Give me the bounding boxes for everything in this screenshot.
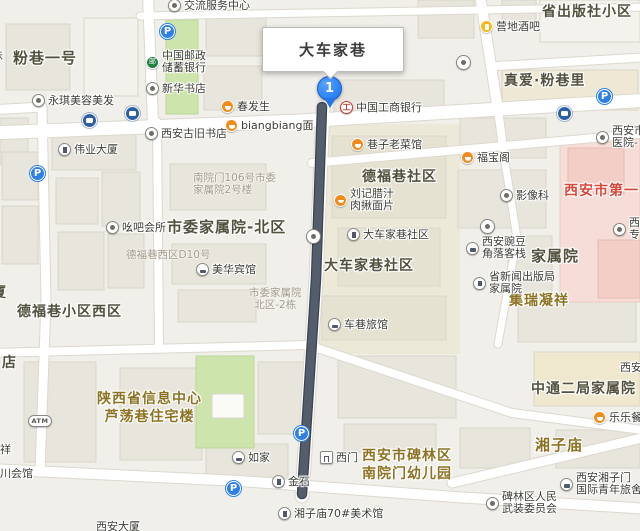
hotel-icon: [560, 478, 573, 491]
area-fenxiang-yihao: 粉巷一号: [13, 49, 77, 68]
hotel-icon: [232, 451, 245, 464]
poi-weiye-dasha: 伟业大厦: [58, 143, 118, 156]
parking-bottom: [226, 481, 241, 500]
poi-yongqi-meirong-meifa: 永琪美容美发: [32, 94, 114, 107]
poi-fubaoge: 福宝阁: [461, 151, 510, 164]
area-xiangzimiao: 湘子庙: [535, 436, 583, 455]
hotel-icon: [196, 263, 209, 276]
dot-icon: [146, 82, 159, 95]
poi-sheng-xinwen-chubanju-jiashuyuan: 省新闻出版局家属院: [473, 271, 555, 295]
area-sha-partial: 厦: [0, 285, 7, 303]
addr-defuxiang-xiqu-d10: 德福巷西区D10号: [126, 249, 210, 261]
bus-icon: [82, 113, 97, 128]
route-marker-number: 1: [325, 81, 334, 96]
poi-xiang-partial: 祥: [0, 444, 11, 456]
poi-beilinqu-renmin-wuzhuang-weiyuanhui: 碑林区人民武装委员会: [486, 491, 557, 515]
dot-icon: [456, 55, 471, 70]
area-dachejiaxiang-shequ: 大车家巷社区: [324, 258, 414, 276]
bldg-icon: [347, 228, 360, 241]
bus-icon: [557, 106, 572, 121]
parking-right: [597, 89, 612, 108]
parking-on-route: [294, 426, 309, 445]
dot-icon: [32, 94, 45, 107]
dot-icon: [500, 189, 513, 202]
parking-left: [30, 166, 45, 185]
poi-yingdi-jiuba: 营地酒吧: [480, 20, 540, 33]
hotel-icon: [328, 318, 341, 331]
poi-xiangzimiao-70-meishuguan: 湘子庙70#美术馆: [278, 507, 383, 520]
poi-dot-route: [306, 229, 321, 248]
poi-chuan-huiguan-partial: 川会馆: [0, 468, 33, 480]
food-icon: [334, 194, 347, 207]
poi-ximen: 西门: [320, 451, 358, 464]
poi-dachejiaxiang-shequ-poi: 大车家巷社区: [347, 228, 429, 241]
area-dian-partial: 店: [2, 355, 17, 373]
poi-yingxiangke: 影像科: [500, 189, 549, 202]
parking-icon: [597, 89, 612, 104]
area-defuxiang-xiaoqu-xiqu: 德福巷小区西区: [17, 304, 122, 322]
area-beilinqu-youeryuan: 西安市碑林区南院门幼儿园: [362, 448, 452, 483]
poi-dot-top: [456, 55, 471, 74]
beer-icon: [480, 20, 493, 33]
poi-xian-dasha-partial: 西安大厦: [96, 521, 140, 531]
addr-nanyuanmen-106-hao: 南院门106号市委家属院2号楼: [193, 172, 276, 196]
poi-xian-wandou-jiaoluo-kezhan: 西安豌豆角落客栈: [466, 236, 526, 260]
poi-xian-xiangzimen-guoji-qingnian-lvshe: 西安湘子门国际青年旅舍: [560, 472, 640, 496]
poi-yaoba-huisuo: 吆吧会所: [106, 221, 166, 234]
poi-dot-center: [480, 219, 495, 238]
dot-icon: [106, 221, 119, 234]
dot-icon: [145, 127, 158, 140]
bus-stop-right: [557, 106, 572, 125]
dot-icon: [168, 0, 181, 12]
area-xianshi-diyi-yiyuan: 西安市第一: [564, 183, 639, 201]
dot-icon: [613, 223, 626, 236]
poi-chunfasheng: 春发生: [221, 100, 270, 113]
addr-beiqu-2-dong: 市委家属院北区-2栋: [249, 287, 302, 311]
poi-chexiang-lvguan: 车巷旅馆: [328, 318, 388, 331]
dot-icon: [306, 229, 321, 244]
bus-stop-left-2: [125, 106, 140, 125]
poi-xian-gujiu-shudian: 西安古旧书店: [145, 127, 227, 140]
poi-jinshi: 金石: [272, 475, 310, 488]
area-zhenai-fenxiangli: 真爱·粉巷里: [504, 73, 585, 91]
poi-xi-zhuan-partial: 西专: [613, 217, 640, 241]
poi-wei-partial: 味: [0, 50, 3, 62]
bldg-icon: [473, 277, 486, 290]
area-zhongtong-erju-jiashuyuan: 中通二局家属院: [531, 381, 636, 399]
bus-icon: [125, 106, 140, 121]
poi-jiaoliu-fuwu-zhongxin: 交流服务中心: [168, 0, 250, 12]
poi-xinhua-shudian: 新华书店: [146, 82, 206, 95]
poi-xian-partial: 西安: [620, 362, 640, 374]
area-sheng-chubanshe-xiaoqu: 省出版社小区: [542, 4, 632, 22]
dot-icon: [486, 497, 499, 510]
map-canvas[interactable]: 交流服务中心中国邮政储蓄银行新华书店永琪美容美发春发生biangbiang面西安…: [0, 0, 640, 531]
parking-icon: [294, 426, 309, 441]
dot-icon: [596, 131, 609, 144]
atm: ATM: [28, 415, 52, 427]
food-icon: [351, 138, 364, 151]
area-shanxisheng-xinxi-zhongxin: 陕西省信息中心芦荡巷住宅楼: [97, 391, 202, 426]
area-shiwei-jiashuyuan-beiqu: 市委家属院-北区: [167, 218, 286, 237]
bldg-icon: [58, 143, 71, 156]
bank-psbc-icon: [146, 56, 159, 69]
poi-zhongguo-youzheng-chuxu-yinhang: 中国邮政储蓄银行: [146, 50, 206, 74]
area-jirui-ningxiang: 集瑞凝祥: [509, 293, 569, 311]
poi-rujia: 如家: [232, 451, 270, 464]
street-callout-text: 大车家巷: [299, 39, 367, 60]
parking-icon: [160, 24, 175, 39]
food-icon: [593, 411, 606, 424]
food-icon: [221, 100, 234, 113]
bank-icbc-icon: [340, 101, 353, 114]
parking-icon: [30, 166, 45, 181]
poi-zhongguo-gongshang-yinhang: 中国工商银行: [340, 101, 422, 114]
bus-stop-left-1: [82, 113, 97, 132]
area-jiashuyuan: 家属院: [531, 247, 579, 266]
poi-meihua-binguan: 美华宾馆: [196, 263, 256, 276]
food-icon: [461, 151, 474, 164]
bldg-icon: [272, 475, 285, 488]
atm-icon: ATM: [28, 415, 52, 427]
poi-xianshi-yiyuan-small: 西安市医院-: [596, 125, 640, 149]
hotel-icon: [466, 242, 479, 255]
poi-biangbiang-mian: biangbiang面: [225, 119, 313, 132]
gate-icon: [320, 451, 333, 464]
dot-icon: [480, 219, 495, 234]
route-marker-1[interactable]: 1: [317, 76, 342, 101]
parking-top-left: [160, 24, 175, 43]
parking-icon: [226, 481, 241, 496]
poi-liuji-lazhi-roujiu-mianpian: 刘记腊汁肉揪面片: [334, 188, 394, 212]
poi-xiangzi-laocaiguan: 巷子老菜馆: [351, 138, 422, 151]
bldg-icon: [278, 507, 291, 520]
area-defuxiang-shequ: 德福巷社区: [362, 169, 437, 187]
poi-lele-can: 乐乐餐: [593, 411, 640, 424]
street-callout[interactable]: 大车家巷: [262, 27, 404, 72]
